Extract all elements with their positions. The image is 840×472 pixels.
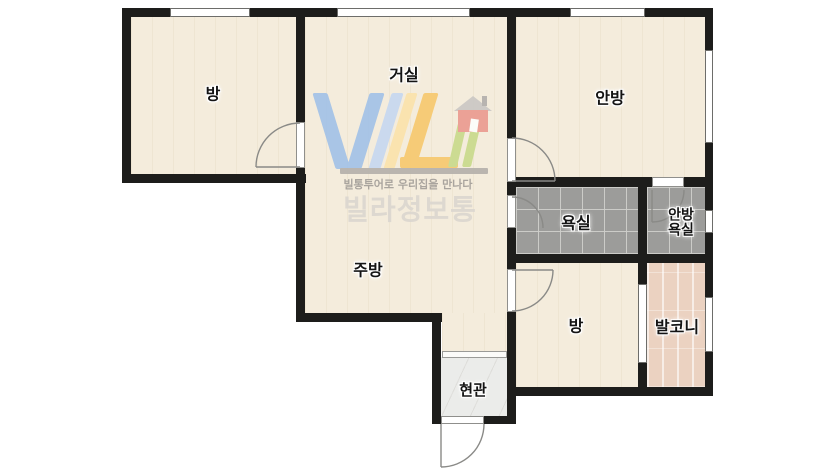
living-label: 거실 [389,68,418,85]
master-bath-label: 안방 욕실 [668,208,694,237]
door-arcs [0,0,840,472]
master-bath-label-line1: 안방 [668,208,694,223]
room-left-label: 방 [206,87,221,104]
master-label: 안방 [595,91,624,108]
bath-label: 욕실 [561,216,590,233]
room-bottom-label: 방 [569,319,584,336]
door-arc [441,424,484,467]
kitchen-label: 주방 [353,263,382,280]
master-bath-label-line2: 욕실 [668,223,694,238]
door-arc [512,270,553,311]
door-arc [512,138,555,181]
door-arc [256,123,300,167]
entry-label: 현관 [459,383,487,399]
balcony-label: 발코니 [655,320,699,337]
door-arc [512,197,543,228]
floor-plan: 빌통투어로 우리집을 만나다 빌라정보통 [0,0,840,472]
